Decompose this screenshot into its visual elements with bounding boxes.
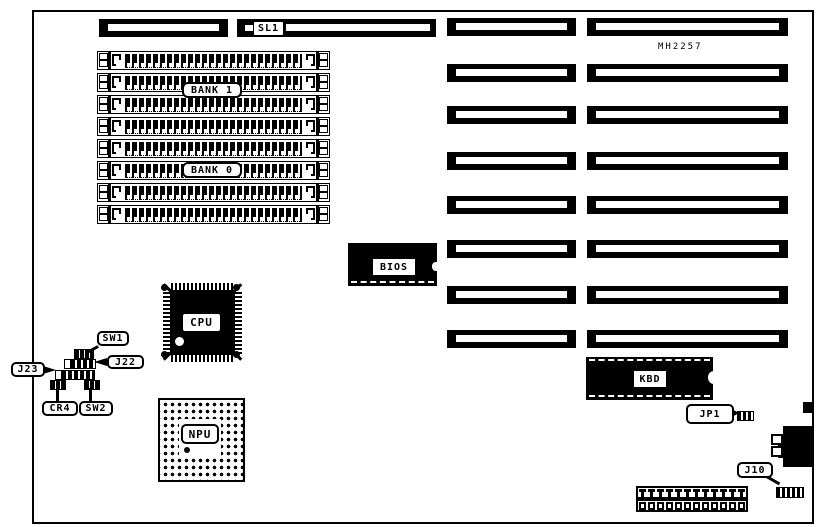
- cpu-label: CPU: [183, 314, 220, 331]
- cpu-pins-top: [171, 283, 234, 290]
- slot-bar: [447, 330, 576, 348]
- bios-notch: [432, 262, 438, 271]
- simm-socket-row: [97, 183, 330, 202]
- bank1-label: BANK 1: [182, 82, 242, 98]
- simm-socket-row: [97, 117, 330, 136]
- cpu-corner-dot: [233, 351, 240, 358]
- sw2-label: SW2: [79, 401, 113, 416]
- kbd-label: KBD: [633, 370, 667, 388]
- cpu-pin1-dot: [175, 337, 184, 346]
- sw1-label: SW1: [97, 331, 129, 346]
- j23-label: J23: [11, 362, 45, 377]
- bios-label: BIOS: [372, 258, 416, 276]
- power-connector-band: [638, 497, 746, 501]
- j22-callout-pointer: [94, 358, 107, 366]
- slot-bar: [447, 152, 576, 170]
- sl1-label: SL1: [253, 21, 284, 36]
- slot-bar: [587, 240, 788, 258]
- din-notch: [771, 434, 783, 445]
- sw2-switch: [84, 380, 100, 390]
- j23-jumper: [55, 370, 95, 380]
- npu-label: NPU: [181, 424, 219, 444]
- slot-bar: [447, 64, 576, 82]
- din-notch: [771, 446, 783, 457]
- npu-pin1-dot: [184, 447, 190, 453]
- j22-jumper: [64, 359, 96, 369]
- sl1-stripe: [286, 24, 430, 31]
- slot-bar: [447, 18, 576, 36]
- j10-header: [776, 487, 804, 498]
- cpu-pins-bottom: [171, 355, 234, 362]
- slot-bar-sl1: SL1: [237, 19, 436, 37]
- slot-bar: [587, 286, 788, 304]
- cpu-pins-right: [235, 291, 242, 354]
- slot-bar: [447, 286, 576, 304]
- slot-bar: [587, 330, 788, 348]
- slot-bar: [587, 18, 788, 36]
- cpu-pins-left: [163, 291, 170, 354]
- cpu-corner-dot: [233, 284, 240, 291]
- sw2-callout-line: [89, 388, 92, 402]
- simm-socket-row: [97, 205, 330, 224]
- cpu-corner-dot: [161, 284, 168, 291]
- slot-bar: [447, 240, 576, 258]
- board-model-text: MH2257: [658, 42, 703, 52]
- simm-socket-row: [97, 139, 330, 158]
- slot-bar: [587, 64, 788, 82]
- bank0-label: BANK 0: [182, 162, 242, 178]
- jp1-label: JP1: [686, 404, 734, 424]
- slot-bar: [587, 106, 788, 124]
- edge-connector-block: [803, 402, 813, 413]
- slot-bar: [99, 19, 228, 37]
- cpu-corner-dot: [161, 351, 168, 358]
- power-connector-pins: [639, 488, 745, 497]
- j22-label: J22: [107, 355, 144, 369]
- slot-bar: [447, 106, 576, 124]
- j10-label: J10: [737, 462, 773, 478]
- slot-bar: [587, 152, 788, 170]
- kbd-notch: [708, 371, 714, 384]
- power-connector: [636, 486, 748, 512]
- sl1-key-notch: [245, 25, 253, 31]
- slot-bar: [447, 196, 576, 214]
- slot-bar: [587, 196, 788, 214]
- keyboard-din-connector: [783, 426, 812, 467]
- simm-socket-row: [97, 51, 330, 70]
- power-connector-sockets: [639, 502, 745, 510]
- cr4-callout-line: [56, 388, 59, 402]
- jp1-jumper: [737, 411, 754, 421]
- motherboard-diagram: SL1 MH2257 BANK 1 BANK 0 BIOS CPU N: [0, 0, 818, 527]
- cr4-label: CR4: [42, 401, 78, 416]
